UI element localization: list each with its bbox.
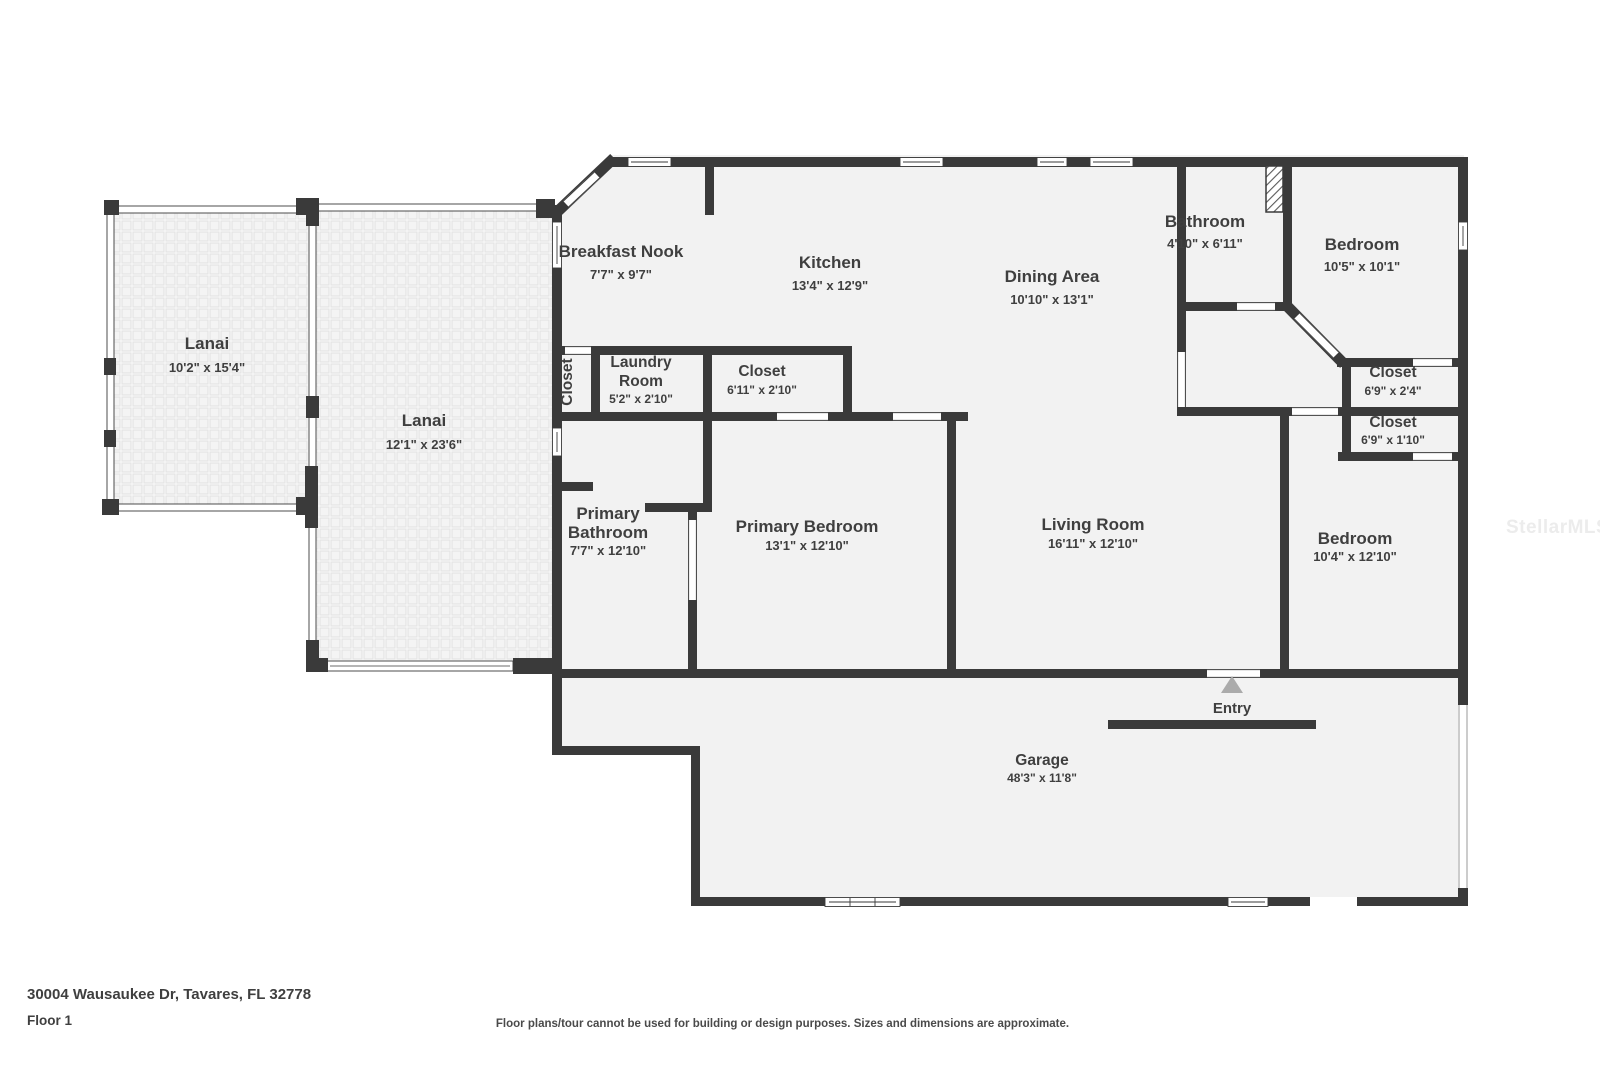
label-lanai2-dims: 12'1" x 23'6" <box>386 437 462 452</box>
label-lanai1-dims: 10'2" x 15'4" <box>169 360 245 375</box>
label-primary-bedroom-name: Primary Bedroom <box>736 517 879 536</box>
bathroom-hatched-door <box>1266 166 1283 212</box>
label-living-name: Living Room <box>1042 515 1145 534</box>
label-closet-laundry-dims: 6'11" x 2'10" <box>727 383 797 397</box>
label-bedroom-top-name: Bedroom <box>1325 235 1400 254</box>
label-primary-bathroom-dims: 7'7" x 12'10" <box>570 543 646 558</box>
label-kitchen-dims: 13'4" x 12'9" <box>792 278 868 293</box>
label-closet-laundry-name: Closet <box>738 363 785 380</box>
label-bedroom-bottom-dims: 10'4" x 12'10" <box>1313 549 1397 564</box>
label-breakfast-nook-dims: 7'7" x 9'7" <box>590 267 652 282</box>
label-bathroom-dims: 4'10" x 6'11" <box>1167 236 1243 251</box>
label-bedroom-top-dims: 10'5" x 10'1" <box>1324 259 1400 274</box>
label-dining-dims: 10'10" x 13'1" <box>1010 292 1094 307</box>
label-kitchen-name: Kitchen <box>799 253 861 272</box>
floorplan-drawing: Lanai 10'2" x 15'4" Lanai 12'1" x 23'6" … <box>0 0 1600 1066</box>
entry-stoop <box>1108 720 1316 729</box>
label-closet-bed1-dims: 6'9" x 2'4" <box>1364 384 1421 398</box>
disclaimer-text: Floor plans/tour cannot be used for buil… <box>0 1018 1565 1030</box>
label-closet-hall: Closet <box>559 358 576 405</box>
property-address: 30004 Wausaukee Dr, Tavares, FL 32778 <box>27 986 311 1003</box>
label-laundry-name1: Laundry <box>610 354 672 371</box>
label-bathroom-name: Bathroom <box>1165 212 1245 231</box>
label-living-dims: 16'11" x 12'10" <box>1048 536 1138 551</box>
label-entry: Entry <box>1213 700 1252 717</box>
label-primary-bathroom-name1: Primary <box>576 504 640 523</box>
label-garage-name: Garage <box>1015 752 1069 769</box>
label-primary-bedroom-dims: 13'1" x 12'10" <box>765 538 849 553</box>
lanai1-floor <box>110 208 312 510</box>
label-lanai1-name: Lanai <box>185 334 229 353</box>
label-closet-bed1-name: Closet <box>1369 364 1416 381</box>
stellar-mls-watermark: StellarMLS <box>1506 517 1600 539</box>
floorplan-page: Lanai 10'2" x 15'4" Lanai 12'1" x 23'6" … <box>0 0 1600 1066</box>
label-closet-bed2-name: Closet <box>1369 414 1416 431</box>
label-closet-bed2-dims: 6'9" x 1'10" <box>1361 433 1425 447</box>
label-laundry-dims: 5'2" x 2'10" <box>609 392 673 406</box>
label-garage-dims: 48'3" x 11'8" <box>1007 771 1077 785</box>
label-dining-name: Dining Area <box>1005 267 1100 286</box>
label-breakfast-nook-name: Breakfast Nook <box>559 242 684 261</box>
label-bedroom-bottom-name: Bedroom <box>1318 529 1393 548</box>
garage-door-right <box>1458 705 1468 888</box>
label-laundry-name2: Room <box>619 373 663 390</box>
label-lanai2-name: Lanai <box>402 411 446 430</box>
label-primary-bathroom-name2: Bathroom <box>568 523 648 542</box>
